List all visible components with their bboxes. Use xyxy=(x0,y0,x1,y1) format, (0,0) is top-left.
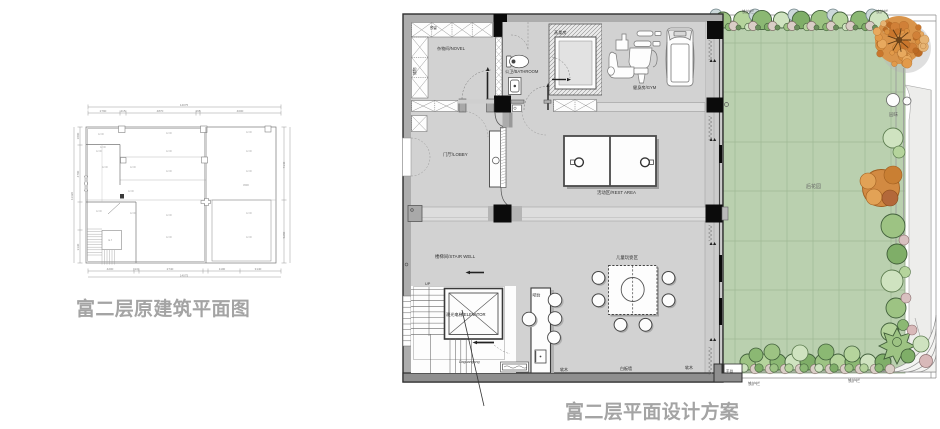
svg-text:预留: 预留 xyxy=(430,25,437,30)
svg-text:铁护栏: 铁护栏 xyxy=(748,380,760,386)
svg-text:14075: 14075 xyxy=(180,103,189,107)
svg-text:12.00: 12.00 xyxy=(98,134,104,136)
svg-text:12.00: 12.00 xyxy=(130,213,136,215)
svg-text:4700: 4700 xyxy=(76,170,80,177)
svg-text:11420: 11420 xyxy=(70,192,74,200)
svg-text:观光电梯/ELEVATOR: 观光电梯/ELEVATOR xyxy=(446,311,486,318)
svg-text:园味: 园味 xyxy=(889,111,898,118)
svg-text:平台: 平台 xyxy=(726,368,734,373)
svg-text:m.f: m.f xyxy=(108,238,112,242)
svg-text:软木: 软木 xyxy=(560,366,568,372)
svg-text:门厅/LOBBY: 门厅/LOBBY xyxy=(443,151,468,158)
svg-text:活动区/REST AREA: 活动区/REST AREA xyxy=(597,189,636,196)
svg-text:4200: 4200 xyxy=(107,267,114,271)
svg-text:5280: 5280 xyxy=(282,231,286,238)
svg-text:12.00: 12.00 xyxy=(166,171,172,173)
svg-text:3130: 3130 xyxy=(76,243,80,250)
svg-text:铁护栏: 铁护栏 xyxy=(742,8,754,14)
svg-text:儿童玩耍区: 儿童玩耍区 xyxy=(616,254,639,261)
svg-text:12.00: 12.00 xyxy=(166,237,172,239)
svg-text:12.00: 12.00 xyxy=(128,191,134,193)
svg-text:3140: 3140 xyxy=(255,267,262,271)
svg-text:[14]: [14] xyxy=(133,267,138,271)
svg-text:后花园: 后花园 xyxy=(806,183,821,190)
svg-text:12.00: 12.00 xyxy=(246,213,252,215)
svg-text:1800: 1800 xyxy=(76,132,80,139)
svg-text:2790: 2790 xyxy=(100,109,107,113)
svg-text:UP: UP xyxy=(425,282,431,286)
svg-text:铁护栏: 铁护栏 xyxy=(848,377,860,383)
svg-text:4000: 4000 xyxy=(237,109,244,113)
svg-text:铁护栏: 铁护栏 xyxy=(876,8,888,14)
svg-text:12.00: 12.00 xyxy=(100,147,106,149)
svg-text:14075: 14075 xyxy=(180,274,189,278)
svg-text:白板墙: 白板墙 xyxy=(620,365,632,371)
svg-text:7140: 7140 xyxy=(282,161,286,168)
svg-text:12.00: 12.00 xyxy=(96,211,102,213)
svg-text:杂物间/NOVEL: 杂物间/NOVEL xyxy=(437,45,466,52)
svg-text:12.00: 12.00 xyxy=(166,151,172,153)
svg-text:公卫/BATHROOM: 公卫/BATHROOM xyxy=(505,69,539,74)
svg-text:4870: 4870 xyxy=(157,109,164,113)
svg-text:12.00: 12.00 xyxy=(130,167,136,169)
svg-text:健身房/GYM: 健身房/GYM xyxy=(633,84,657,91)
svg-text:4500: 4500 xyxy=(243,183,249,187)
svg-text:12.00: 12.00 xyxy=(246,171,252,173)
svg-text:195: 195 xyxy=(195,109,200,113)
svg-text:软木: 软木 xyxy=(685,364,693,370)
svg-text:415: 415 xyxy=(120,109,125,113)
svg-text:12.00: 12.00 xyxy=(96,151,102,153)
svg-text:12.00: 12.00 xyxy=(246,237,252,239)
svg-text:蒸桑房: 蒸桑房 xyxy=(554,29,567,36)
svg-text:12.00: 12.00 xyxy=(102,167,108,169)
svg-text:12.00: 12.00 xyxy=(246,151,252,153)
svg-text:12.00: 12.00 xyxy=(246,132,252,134)
svg-text:Daguangong: Daguangong xyxy=(459,360,480,364)
svg-text:12.00: 12.00 xyxy=(166,215,172,217)
svg-text:楼梯间/STAIR WELL: 楼梯间/STAIR WELL xyxy=(435,253,476,260)
svg-text:12.00: 12.00 xyxy=(166,133,172,135)
svg-text:1100: 1100 xyxy=(219,267,226,271)
svg-text:2740: 2740 xyxy=(167,267,174,271)
svg-text:吧台: 吧台 xyxy=(533,292,541,298)
svg-text:储物: 储物 xyxy=(412,67,417,75)
